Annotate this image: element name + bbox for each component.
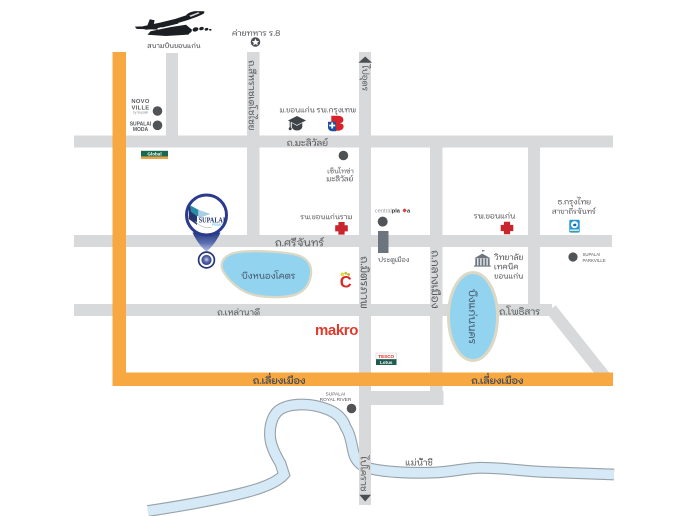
svg-text:TESCO: TESCO	[378, 354, 394, 359]
svg-text:Lotus: Lotus	[380, 360, 393, 365]
svg-text:Global: Global	[147, 152, 161, 157]
svg-text:centralpla: centralpla	[375, 209, 401, 215]
svg-text:makro: makro	[315, 322, 358, 339]
svg-text:SUPALAI: SUPALAI	[326, 392, 346, 398]
svg-text:by Supalai: by Supalai	[133, 111, 148, 115]
svg-text:PARKVILLE: PARKVILLE	[583, 258, 606, 263]
svg-text:MODA: MODA	[133, 127, 149, 133]
svg-text:SUPALAI: SUPALAI	[583, 252, 601, 257]
svg-text:C: C	[340, 273, 352, 291]
svg-text:NOVO: NOVO	[131, 99, 149, 105]
svg-text:ROYAL RIVER: ROYAL RIVER	[320, 397, 352, 403]
svg-text:PRIMO: PRIMO	[212, 223, 223, 227]
